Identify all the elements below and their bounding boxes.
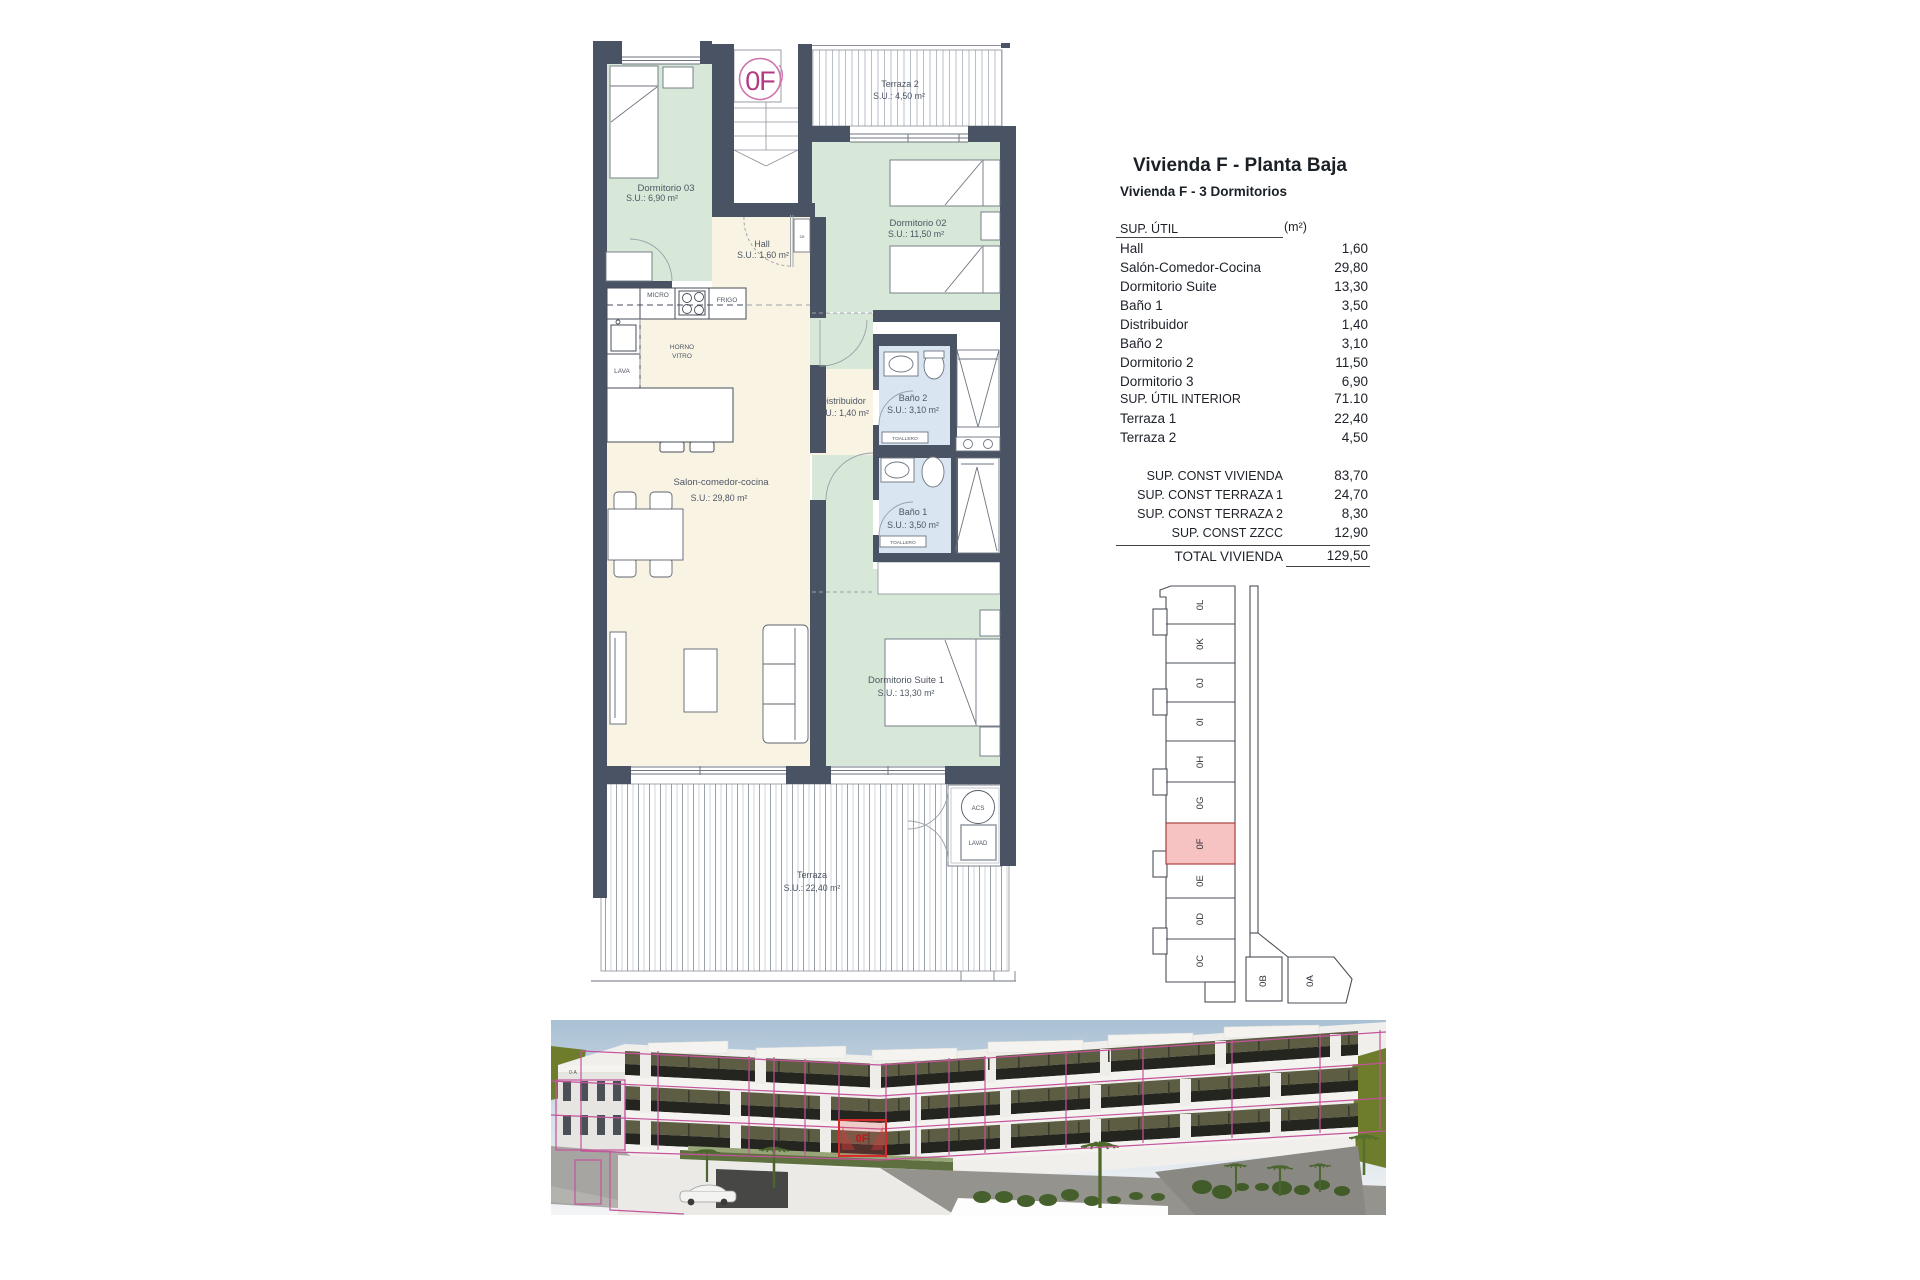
svg-text:LAVAD: LAVAD: [969, 841, 988, 847]
svg-text:HORNO: HORNO: [670, 344, 694, 351]
svg-text:S.U.: 6,90 m²: S.U.: 6,90 m²: [626, 193, 678, 203]
svg-text:S.U.: 13,30 m²: S.U.: 13,30 m²: [878, 688, 935, 698]
svg-text:Dormitorio Suite 1: Dormitorio Suite 1: [868, 675, 944, 686]
svg-text:Dormitorio 02: Dormitorio 02: [889, 218, 946, 229]
svg-text:S.U.: 29,80 m²: S.U.: 29,80 m²: [691, 493, 748, 503]
svg-text:FRIGO: FRIGO: [717, 297, 738, 304]
svg-text:0D: 0D: [1195, 913, 1206, 925]
svg-text:0J: 0J: [1195, 678, 1206, 688]
svg-text:0E: 0E: [1195, 875, 1206, 887]
svg-text:0I: 0I: [1195, 718, 1206, 726]
svg-text:0G: 0G: [1195, 797, 1206, 810]
svg-text:0F: 0F: [745, 66, 775, 96]
svg-text:ACS: ACS: [972, 805, 985, 812]
svg-text:0A: 0A: [1305, 975, 1316, 987]
svg-text:0K: 0K: [1195, 638, 1206, 650]
svg-text:TOALLERO: TOALLERO: [892, 436, 918, 442]
svg-text:0B: 0B: [1258, 975, 1269, 987]
svg-text:Distribuidor: Distribuidor: [820, 396, 866, 406]
svg-text:0F: 0F: [856, 1133, 869, 1145]
svg-text:TOALLERO: TOALLERO: [890, 540, 916, 546]
svg-text:Salon-comedor-cocina: Salon-comedor-cocina: [673, 477, 769, 488]
svg-text:S.U.: 1,60 m²: S.U.: 1,60 m²: [737, 250, 789, 260]
svg-text:MICRO: MICRO: [647, 292, 669, 299]
svg-text:0F: 0F: [1195, 838, 1206, 849]
svg-text:Terraza: Terraza: [797, 870, 827, 880]
svg-text:Baño 1: Baño 1: [899, 507, 928, 517]
svg-text:S.U.: 1,40 m²: S.U.: 1,40 m²: [817, 408, 869, 418]
svg-text:0H: 0H: [1195, 756, 1206, 768]
svg-text:0C: 0C: [1195, 955, 1206, 967]
svg-text:VITRO: VITRO: [672, 353, 692, 360]
svg-text:Baño 2: Baño 2: [899, 393, 928, 403]
svg-text:Hall: Hall: [754, 239, 770, 249]
svg-text:0·A: 0·A: [569, 1070, 577, 1076]
svg-text:Terraza 2: Terraza 2: [881, 79, 919, 89]
svg-text:S.U.: 22,40 m²: S.U.: 22,40 m²: [784, 883, 841, 893]
svg-text:ce: ce: [800, 234, 805, 239]
svg-text:S.U.: 3,10 m²: S.U.: 3,10 m²: [887, 405, 939, 415]
svg-text:0L: 0L: [1195, 600, 1206, 611]
svg-text:S.U.: 11,50 m²: S.U.: 11,50 m²: [888, 229, 944, 239]
svg-text:S.U.: 4,50 m²: S.U.: 4,50 m²: [873, 91, 925, 101]
svg-text:LAVA: LAVA: [614, 368, 630, 375]
svg-text:S.U.: 3,50 m²: S.U.: 3,50 m²: [887, 520, 939, 530]
